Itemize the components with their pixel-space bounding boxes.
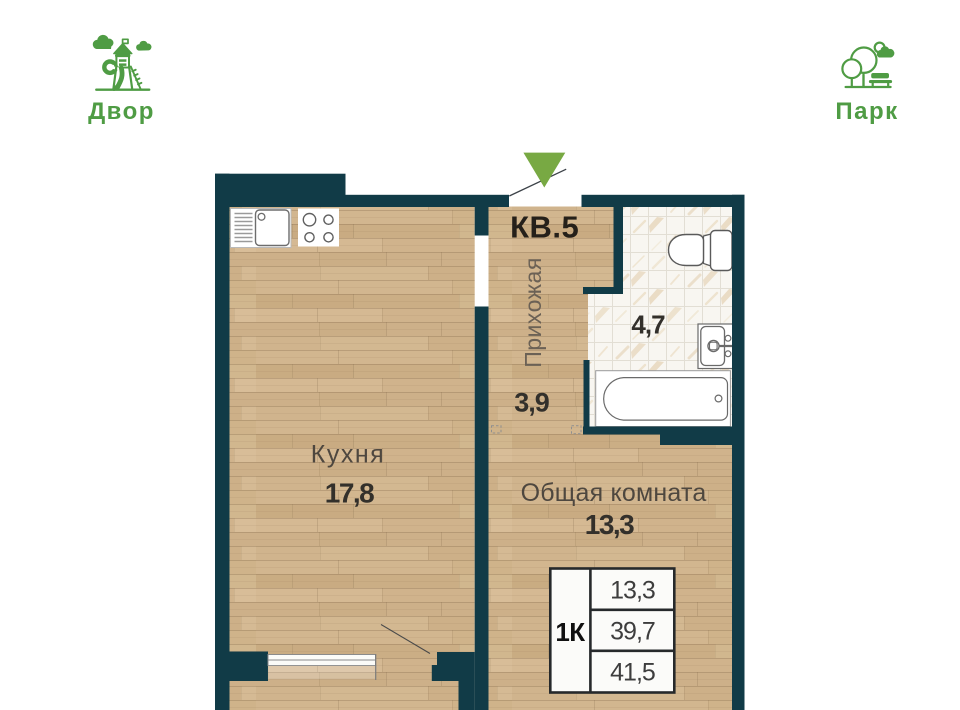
- svg-text:Парк: Парк: [835, 98, 898, 125]
- svg-text:Общая комната: Общая комната: [521, 479, 707, 507]
- svg-text:4,7: 4,7: [631, 310, 665, 340]
- svg-text:39,7: 39,7: [610, 618, 655, 646]
- svg-text:13,3: 13,3: [585, 509, 634, 540]
- svg-text:Кухня: Кухня: [311, 441, 385, 469]
- svg-text:1К: 1К: [555, 617, 585, 647]
- svg-text:Прихожая: Прихожая: [520, 257, 546, 368]
- svg-text:3,9: 3,9: [514, 388, 550, 418]
- svg-text:КВ.5: КВ.5: [510, 210, 579, 245]
- svg-text:13,3: 13,3: [610, 577, 655, 605]
- svg-text:Двор: Двор: [88, 98, 155, 125]
- svg-text:41,5: 41,5: [610, 659, 655, 687]
- svg-text:17,8: 17,8: [325, 478, 374, 509]
